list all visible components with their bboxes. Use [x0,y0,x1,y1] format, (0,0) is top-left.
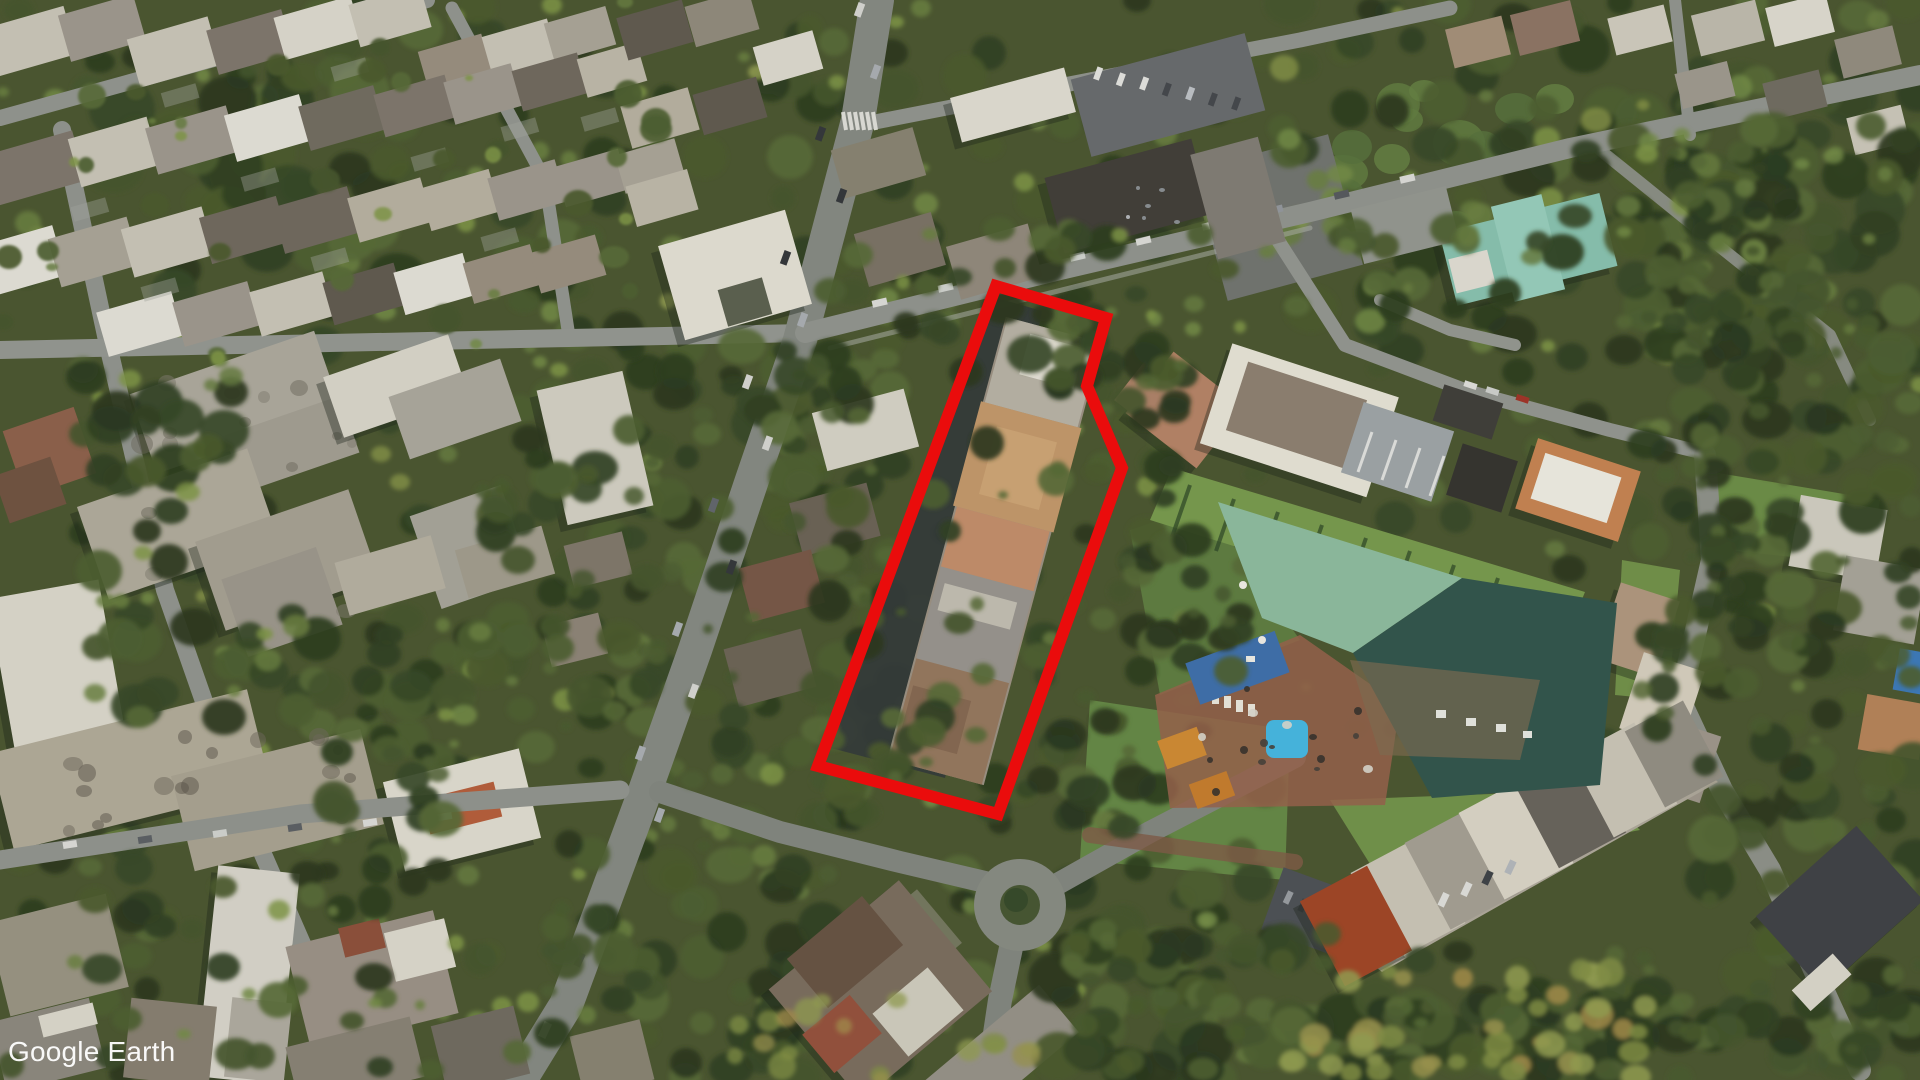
svg-text:Google Earth: Google Earth [8,1036,175,1067]
